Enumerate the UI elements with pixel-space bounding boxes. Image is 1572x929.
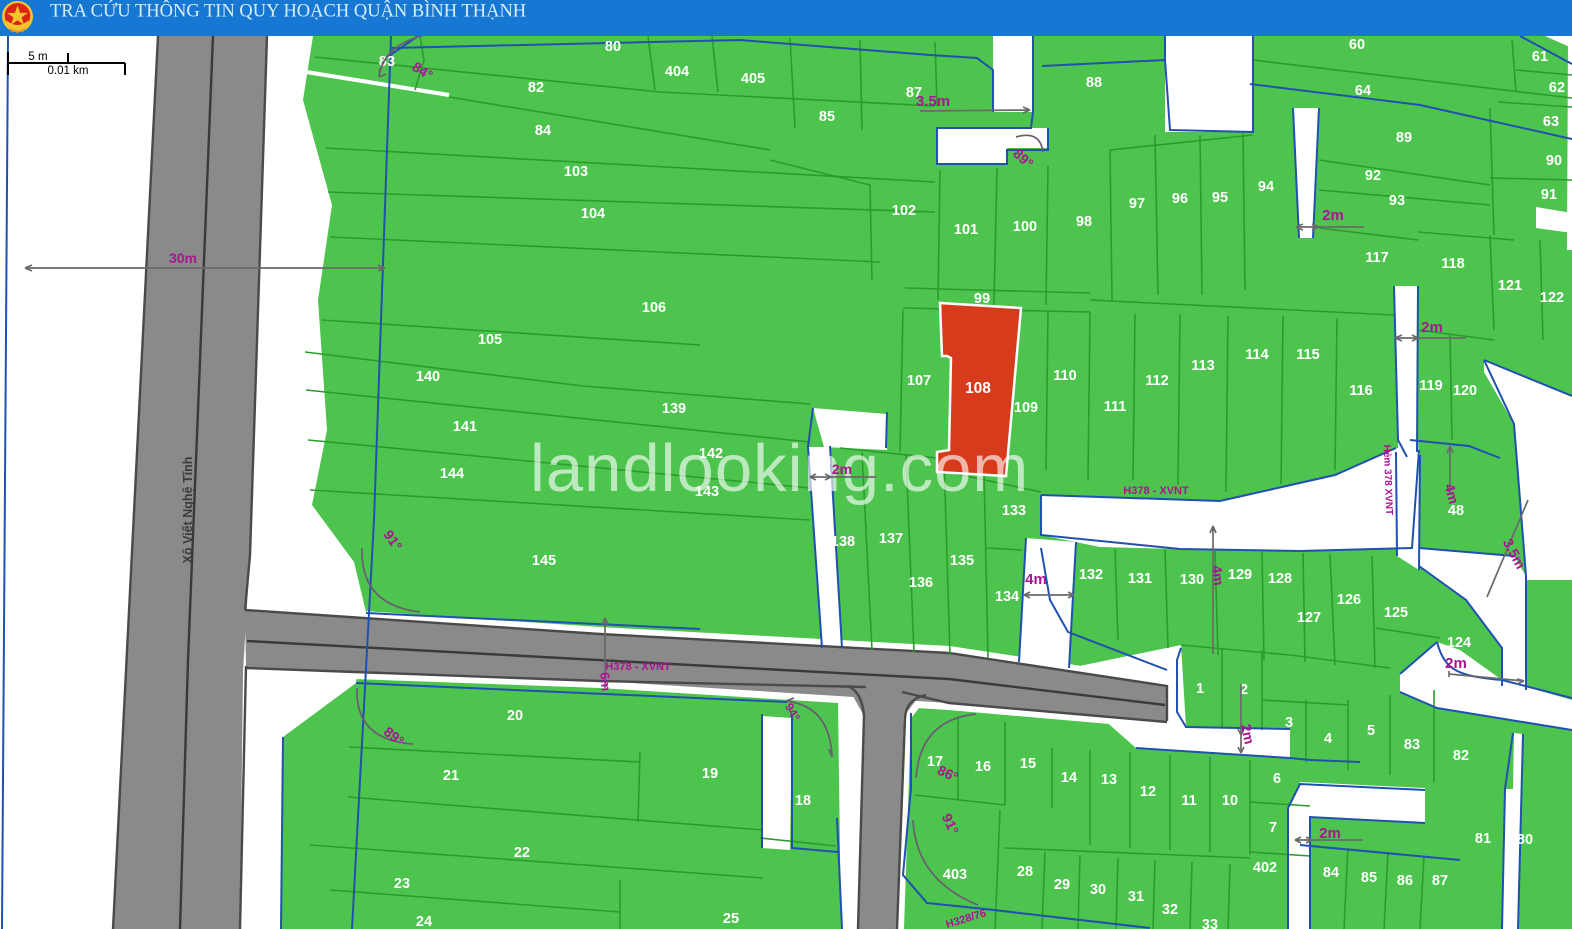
svg-text:113: 113 bbox=[1191, 358, 1214, 374]
svg-text:82: 82 bbox=[1453, 748, 1469, 764]
svg-text:Xô Viết Nghệ Tĩnh: Xô Viết Nghệ Tĩnh bbox=[181, 457, 195, 564]
svg-text:107: 107 bbox=[907, 373, 931, 389]
svg-text:2m: 2m bbox=[1421, 319, 1443, 336]
svg-text:102: 102 bbox=[892, 203, 916, 219]
svg-text:129: 129 bbox=[1228, 567, 1252, 583]
svg-text:3.5m: 3.5m bbox=[916, 93, 950, 110]
svg-text:121: 121 bbox=[1498, 278, 1522, 294]
svg-text:99: 99 bbox=[974, 291, 990, 307]
svg-text:145: 145 bbox=[532, 553, 556, 569]
svg-text:0.01 km: 0.01 km bbox=[48, 65, 89, 77]
svg-text:20: 20 bbox=[507, 708, 523, 724]
svg-text:117: 117 bbox=[1365, 250, 1388, 266]
svg-text:85: 85 bbox=[1361, 870, 1377, 886]
svg-text:111: 111 bbox=[1104, 399, 1127, 415]
svg-text:landlooking.com: landlooking.com bbox=[530, 431, 1029, 506]
svg-text:19: 19 bbox=[702, 766, 718, 782]
svg-text:48: 48 bbox=[1448, 503, 1464, 519]
svg-text:30m: 30m bbox=[169, 250, 197, 266]
svg-text:130: 130 bbox=[1180, 572, 1204, 588]
svg-text:15: 15 bbox=[1020, 756, 1036, 772]
svg-text:106: 106 bbox=[642, 300, 666, 316]
svg-text:80: 80 bbox=[605, 39, 621, 55]
svg-text:3: 3 bbox=[1285, 715, 1293, 731]
svg-text:2m: 2m bbox=[832, 461, 852, 477]
svg-text:116: 116 bbox=[1349, 383, 1372, 399]
svg-text:25: 25 bbox=[723, 911, 739, 927]
svg-text:110: 110 bbox=[1053, 368, 1076, 384]
svg-text:122: 122 bbox=[1540, 290, 1564, 306]
svg-text:403: 403 bbox=[943, 867, 967, 883]
svg-text:18: 18 bbox=[795, 793, 811, 809]
svg-text:2m: 2m bbox=[1322, 207, 1344, 224]
svg-text:109: 109 bbox=[1014, 400, 1038, 416]
svg-text:98: 98 bbox=[1076, 214, 1092, 230]
svg-text:108: 108 bbox=[965, 380, 991, 397]
svg-text:139: 139 bbox=[662, 401, 686, 417]
svg-text:H378 - XVNT: H378 - XVNT bbox=[605, 661, 671, 673]
svg-text:31: 31 bbox=[1128, 889, 1144, 905]
svg-text:81: 81 bbox=[1475, 831, 1491, 847]
svg-text:82: 82 bbox=[528, 80, 544, 96]
svg-text:119: 119 bbox=[1419, 378, 1442, 394]
svg-text:93: 93 bbox=[1389, 193, 1405, 209]
svg-text:124: 124 bbox=[1447, 635, 1471, 651]
svg-text:22: 22 bbox=[514, 845, 530, 861]
svg-text:84: 84 bbox=[535, 123, 551, 139]
svg-text:114: 114 bbox=[1245, 347, 1268, 363]
svg-text:103: 103 bbox=[564, 164, 588, 180]
svg-text:134: 134 bbox=[995, 589, 1019, 605]
svg-text:128: 128 bbox=[1268, 571, 1292, 587]
svg-text:118: 118 bbox=[1441, 256, 1464, 272]
svg-text:28: 28 bbox=[1017, 864, 1033, 880]
svg-text:11: 11 bbox=[1181, 793, 1196, 809]
svg-text:101: 101 bbox=[954, 222, 978, 238]
svg-text:120: 120 bbox=[1453, 383, 1477, 399]
svg-text:136: 136 bbox=[909, 575, 933, 591]
svg-text:131: 131 bbox=[1128, 571, 1152, 587]
svg-text:92: 92 bbox=[1365, 168, 1381, 184]
svg-text:86: 86 bbox=[1397, 873, 1413, 889]
svg-text:2m: 2m bbox=[1319, 825, 1341, 842]
svg-text:140: 140 bbox=[416, 369, 440, 385]
svg-text:61: 61 bbox=[1532, 49, 1548, 65]
svg-text:21: 21 bbox=[443, 768, 459, 784]
svg-text:137: 137 bbox=[879, 531, 903, 547]
svg-text:143: 143 bbox=[695, 484, 719, 500]
svg-text:404: 404 bbox=[665, 64, 689, 80]
svg-text:112: 112 bbox=[1145, 373, 1168, 389]
svg-text:5 m: 5 m bbox=[28, 51, 47, 63]
svg-text:10: 10 bbox=[1222, 793, 1238, 809]
svg-text:29: 29 bbox=[1054, 877, 1070, 893]
svg-text:60: 60 bbox=[1349, 37, 1365, 53]
svg-text:64: 64 bbox=[1355, 83, 1371, 99]
svg-text:83: 83 bbox=[1404, 737, 1420, 753]
svg-text:85: 85 bbox=[819, 109, 835, 125]
svg-text:6: 6 bbox=[1273, 771, 1281, 787]
svg-text:6m: 6m bbox=[597, 672, 614, 692]
svg-text:32: 32 bbox=[1162, 902, 1178, 918]
svg-text:24: 24 bbox=[416, 914, 432, 929]
svg-text:135: 135 bbox=[950, 553, 974, 569]
svg-text:84: 84 bbox=[1323, 865, 1339, 881]
svg-text:141: 141 bbox=[453, 419, 477, 435]
svg-text:95: 95 bbox=[1212, 190, 1228, 206]
svg-text:100: 100 bbox=[1013, 219, 1037, 235]
svg-text:90: 90 bbox=[1546, 153, 1562, 169]
svg-text:87: 87 bbox=[1432, 873, 1448, 889]
svg-text:125: 125 bbox=[1384, 605, 1408, 621]
svg-text:96: 96 bbox=[1172, 191, 1188, 207]
svg-text:80: 80 bbox=[1517, 832, 1533, 848]
svg-text:13: 13 bbox=[1101, 772, 1117, 788]
svg-text:91: 91 bbox=[1541, 187, 1557, 203]
svg-text:5: 5 bbox=[1367, 723, 1375, 739]
svg-text:127: 127 bbox=[1297, 610, 1321, 626]
svg-text:7: 7 bbox=[1269, 820, 1277, 836]
svg-text:30: 30 bbox=[1090, 882, 1106, 898]
svg-text:132: 132 bbox=[1079, 567, 1103, 583]
svg-text:12: 12 bbox=[1140, 784, 1156, 800]
svg-text:142: 142 bbox=[699, 446, 723, 462]
svg-text:88: 88 bbox=[1086, 75, 1102, 91]
svg-text:405: 405 bbox=[741, 71, 765, 87]
svg-text:89: 89 bbox=[1396, 130, 1412, 146]
svg-text:402: 402 bbox=[1253, 860, 1277, 876]
svg-text:105: 105 bbox=[478, 332, 502, 348]
svg-text:138: 138 bbox=[831, 534, 855, 550]
svg-text:16: 16 bbox=[975, 759, 991, 775]
svg-text:2m: 2m bbox=[1445, 655, 1467, 672]
svg-text:133: 133 bbox=[1002, 503, 1026, 519]
svg-text:62: 62 bbox=[1549, 80, 1565, 96]
svg-text:23: 23 bbox=[394, 876, 410, 892]
svg-text:115: 115 bbox=[1296, 347, 1319, 363]
svg-text:144: 144 bbox=[440, 466, 464, 482]
svg-text:4: 4 bbox=[1324, 731, 1332, 747]
svg-text:14: 14 bbox=[1061, 770, 1077, 786]
svg-text:97: 97 bbox=[1129, 196, 1145, 212]
svg-text:1: 1 bbox=[1196, 681, 1204, 697]
svg-text:33: 33 bbox=[1202, 917, 1218, 929]
svg-text:TRA CỨU THÔNG TIN QUY HOẠCH QU: TRA CỨU THÔNG TIN QUY HOẠCH QUẬN BÌNH TH… bbox=[50, 0, 526, 22]
svg-text:63: 63 bbox=[1543, 114, 1559, 130]
svg-text:94: 94 bbox=[1258, 179, 1274, 195]
svg-text:4m: 4m bbox=[1025, 571, 1047, 588]
svg-text:104: 104 bbox=[581, 206, 605, 222]
svg-text:H378 - XVNT: H378 - XVNT bbox=[1123, 485, 1189, 497]
svg-text:126: 126 bbox=[1337, 592, 1361, 608]
svg-text:4m: 4m bbox=[1209, 564, 1227, 586]
